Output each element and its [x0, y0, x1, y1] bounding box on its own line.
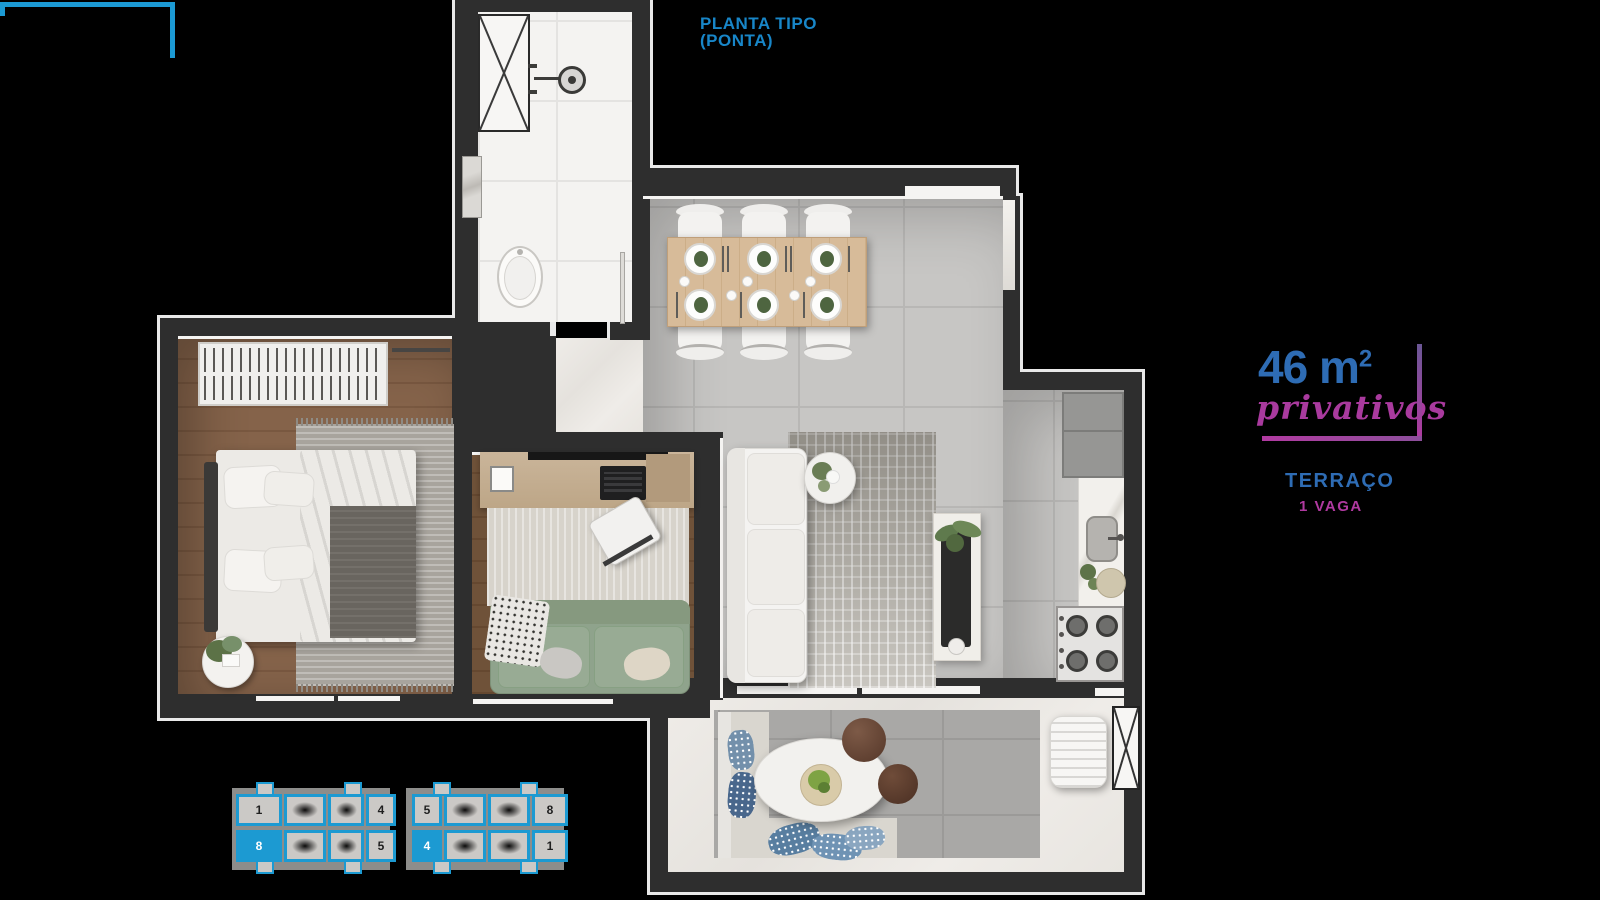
keyplan-unit-label: 1	[535, 833, 565, 859]
keyplan-unit	[488, 794, 530, 826]
keyplan-unit	[328, 794, 364, 826]
terrace-shaft-box	[1112, 706, 1140, 790]
bracket-bar	[170, 2, 175, 58]
bathroom-door	[620, 252, 625, 324]
feature-terrace: TERRAÇO	[1285, 470, 1394, 493]
bedside-plant	[222, 636, 242, 652]
counter-board	[1096, 568, 1126, 598]
sofa-back	[727, 448, 745, 683]
keyplan-unit	[284, 830, 326, 862]
terrace-sill	[1095, 688, 1124, 696]
floor-plan-image: PLANTA TIPO (PONTA) 46 m2 privativos TER…	[0, 0, 1600, 900]
keyplan-unit-4: 4	[366, 794, 396, 826]
wall-terrace-left	[650, 678, 668, 892]
sofa-cushion	[747, 529, 805, 605]
wall-step	[1003, 372, 1142, 390]
shower-handle	[528, 90, 537, 94]
keyplan-unit	[328, 830, 364, 862]
office-rug	[487, 508, 689, 606]
keyplan-unit-5b: 5	[366, 830, 396, 862]
plan-title-line1: PLANTA TIPO	[700, 15, 817, 32]
keyplan-unit	[444, 794, 486, 826]
shower-handle	[528, 64, 537, 68]
keyplan-unit-label: 4	[415, 833, 439, 859]
keyplan-unit-5: 5	[412, 794, 442, 826]
bracket-line	[0, 2, 175, 7]
wall-bed-office-divider	[452, 432, 472, 694]
area-sup: 2	[1359, 346, 1371, 373]
bed-pillow	[263, 544, 315, 581]
coffee-table-flowers	[818, 480, 830, 492]
stove-knob	[1059, 648, 1064, 653]
refrigerator-line	[1064, 430, 1122, 432]
terrace-pouf	[878, 764, 918, 804]
dining-window-sill	[1003, 200, 1015, 290]
cutlery	[740, 292, 742, 318]
plan-title-line2: (PONTA)	[700, 32, 817, 49]
laptop-keys	[604, 472, 642, 492]
keyplan-smudge	[336, 802, 357, 818]
shower-head-center	[568, 76, 576, 84]
wall-office-living-divider	[694, 432, 723, 700]
plate-garnish	[820, 297, 834, 313]
keyplan-smudge	[452, 838, 477, 854]
cutlery	[722, 246, 724, 272]
dining-cup	[805, 276, 816, 287]
stove-knob	[1059, 632, 1064, 637]
cutlery	[790, 246, 792, 272]
keyplan-smudge	[496, 802, 521, 818]
console-plant	[946, 534, 964, 552]
keyplan-unit-label: 5	[369, 833, 393, 859]
platter-salad	[818, 782, 830, 793]
stove-burner	[1096, 650, 1118, 672]
keyplan-smudge	[336, 838, 357, 854]
wall-bath-bottom2	[610, 322, 632, 340]
keyplan-smudge	[292, 802, 317, 818]
keyplan-unit-label: 5	[415, 797, 439, 823]
wall-hall-block	[452, 336, 556, 432]
wardrobe-rail	[392, 348, 450, 352]
keyplan-unit	[444, 830, 486, 862]
wall-bath-top	[455, 0, 650, 12]
rug-fringe	[296, 418, 454, 426]
keyplan-smudge	[452, 802, 477, 818]
terrace-pouf	[842, 718, 886, 762]
keyplan-smudge	[496, 838, 521, 854]
wall-office-top	[472, 432, 723, 452]
hall-floor	[556, 338, 643, 432]
keyplan-tab	[520, 860, 538, 874]
keyplan-unit-label: 8	[535, 797, 565, 823]
plate-garnish	[757, 251, 771, 267]
stove-knob	[1059, 616, 1064, 621]
dining-inner-line	[643, 196, 1003, 199]
keyplan-unit-1: 1	[236, 794, 282, 826]
keyplan-unit	[488, 830, 530, 862]
stove-burner	[1096, 615, 1118, 637]
keyplan: 1 4 5 8 8 5 4 1	[228, 780, 568, 876]
keyplan-smudge	[292, 838, 317, 854]
stove-burner	[1066, 650, 1088, 672]
plate-garnish	[694, 297, 708, 313]
plate-garnish	[820, 251, 834, 267]
desk-pad	[646, 454, 690, 502]
cutlery	[803, 292, 805, 318]
bedroom-inner-line	[178, 336, 452, 339]
desk-frame	[490, 466, 514, 492]
dining-cup	[726, 290, 737, 301]
bedside-book	[222, 654, 240, 667]
wardrobe-hangers	[204, 376, 382, 400]
wardrobe-hangers	[204, 348, 382, 372]
area-bracket-bar	[1417, 344, 1422, 441]
keyplan-unit-8-highlighted: 8	[236, 830, 282, 862]
keyplan-unit-1b: 1	[532, 830, 568, 862]
bed-throw	[330, 506, 416, 638]
cutlery	[676, 292, 678, 318]
keyplan-tab	[256, 860, 274, 874]
area-value-text: 46 m	[1258, 341, 1359, 393]
area-bracket-line	[1262, 436, 1422, 441]
toilet-button	[517, 249, 523, 255]
toilet-seat	[504, 256, 536, 300]
stove-burner	[1066, 615, 1088, 637]
wall-bedroom-top	[160, 318, 472, 336]
keyplan-unit-4-highlighted: 4	[412, 830, 442, 862]
cutlery	[727, 246, 729, 272]
wall-terrace-bottom	[650, 872, 1142, 892]
rug-fringe	[296, 684, 454, 692]
wall-right-exterior	[1124, 372, 1142, 702]
refrigerator	[1062, 392, 1124, 478]
keyplan-tab	[344, 860, 362, 874]
stove-knob	[1059, 664, 1064, 669]
bedroom-window	[338, 696, 400, 701]
keyplan-unit-8: 8	[532, 794, 568, 826]
sofa-cushion	[747, 453, 805, 525]
bracket-tick	[0, 2, 5, 16]
plan-title: PLANTA TIPO (PONTA)	[700, 15, 817, 50]
area-value: 46 m2	[1258, 340, 1371, 394]
bed-pillow	[263, 470, 315, 507]
office-window	[473, 699, 613, 704]
bedroom-window	[256, 696, 334, 701]
divider-highlight	[720, 438, 723, 698]
cutlery	[785, 246, 787, 272]
keyplan-unit-label: 4	[369, 797, 393, 823]
dining-cup	[679, 276, 690, 287]
bathroom-vanity	[462, 156, 482, 218]
dining-cup	[789, 290, 800, 301]
keyplan-unit-label: 1	[239, 797, 279, 823]
wall-bottom	[160, 694, 710, 718]
plate-garnish	[694, 251, 708, 267]
keyplan-tab	[433, 860, 451, 874]
dining-chair	[804, 344, 852, 360]
cutlery	[848, 246, 850, 272]
entry-door	[905, 186, 1000, 196]
dining-chair	[740, 344, 788, 360]
sofa-cushion	[747, 609, 805, 677]
dining-chair	[676, 344, 724, 360]
keyplan-unit-label: 8	[239, 833, 279, 859]
wall-left-exterior	[160, 318, 178, 718]
terrace-lounge-chair	[1050, 716, 1107, 788]
sink-faucet-base	[1117, 534, 1124, 541]
dining-cup	[742, 276, 753, 287]
shaft-box	[478, 14, 530, 132]
bed-headboard	[204, 462, 218, 632]
console-bowl	[948, 638, 965, 655]
keyplan-unit	[284, 794, 326, 826]
plate-garnish	[757, 297, 771, 313]
feature-parking: 1 VAGA	[1299, 498, 1363, 515]
